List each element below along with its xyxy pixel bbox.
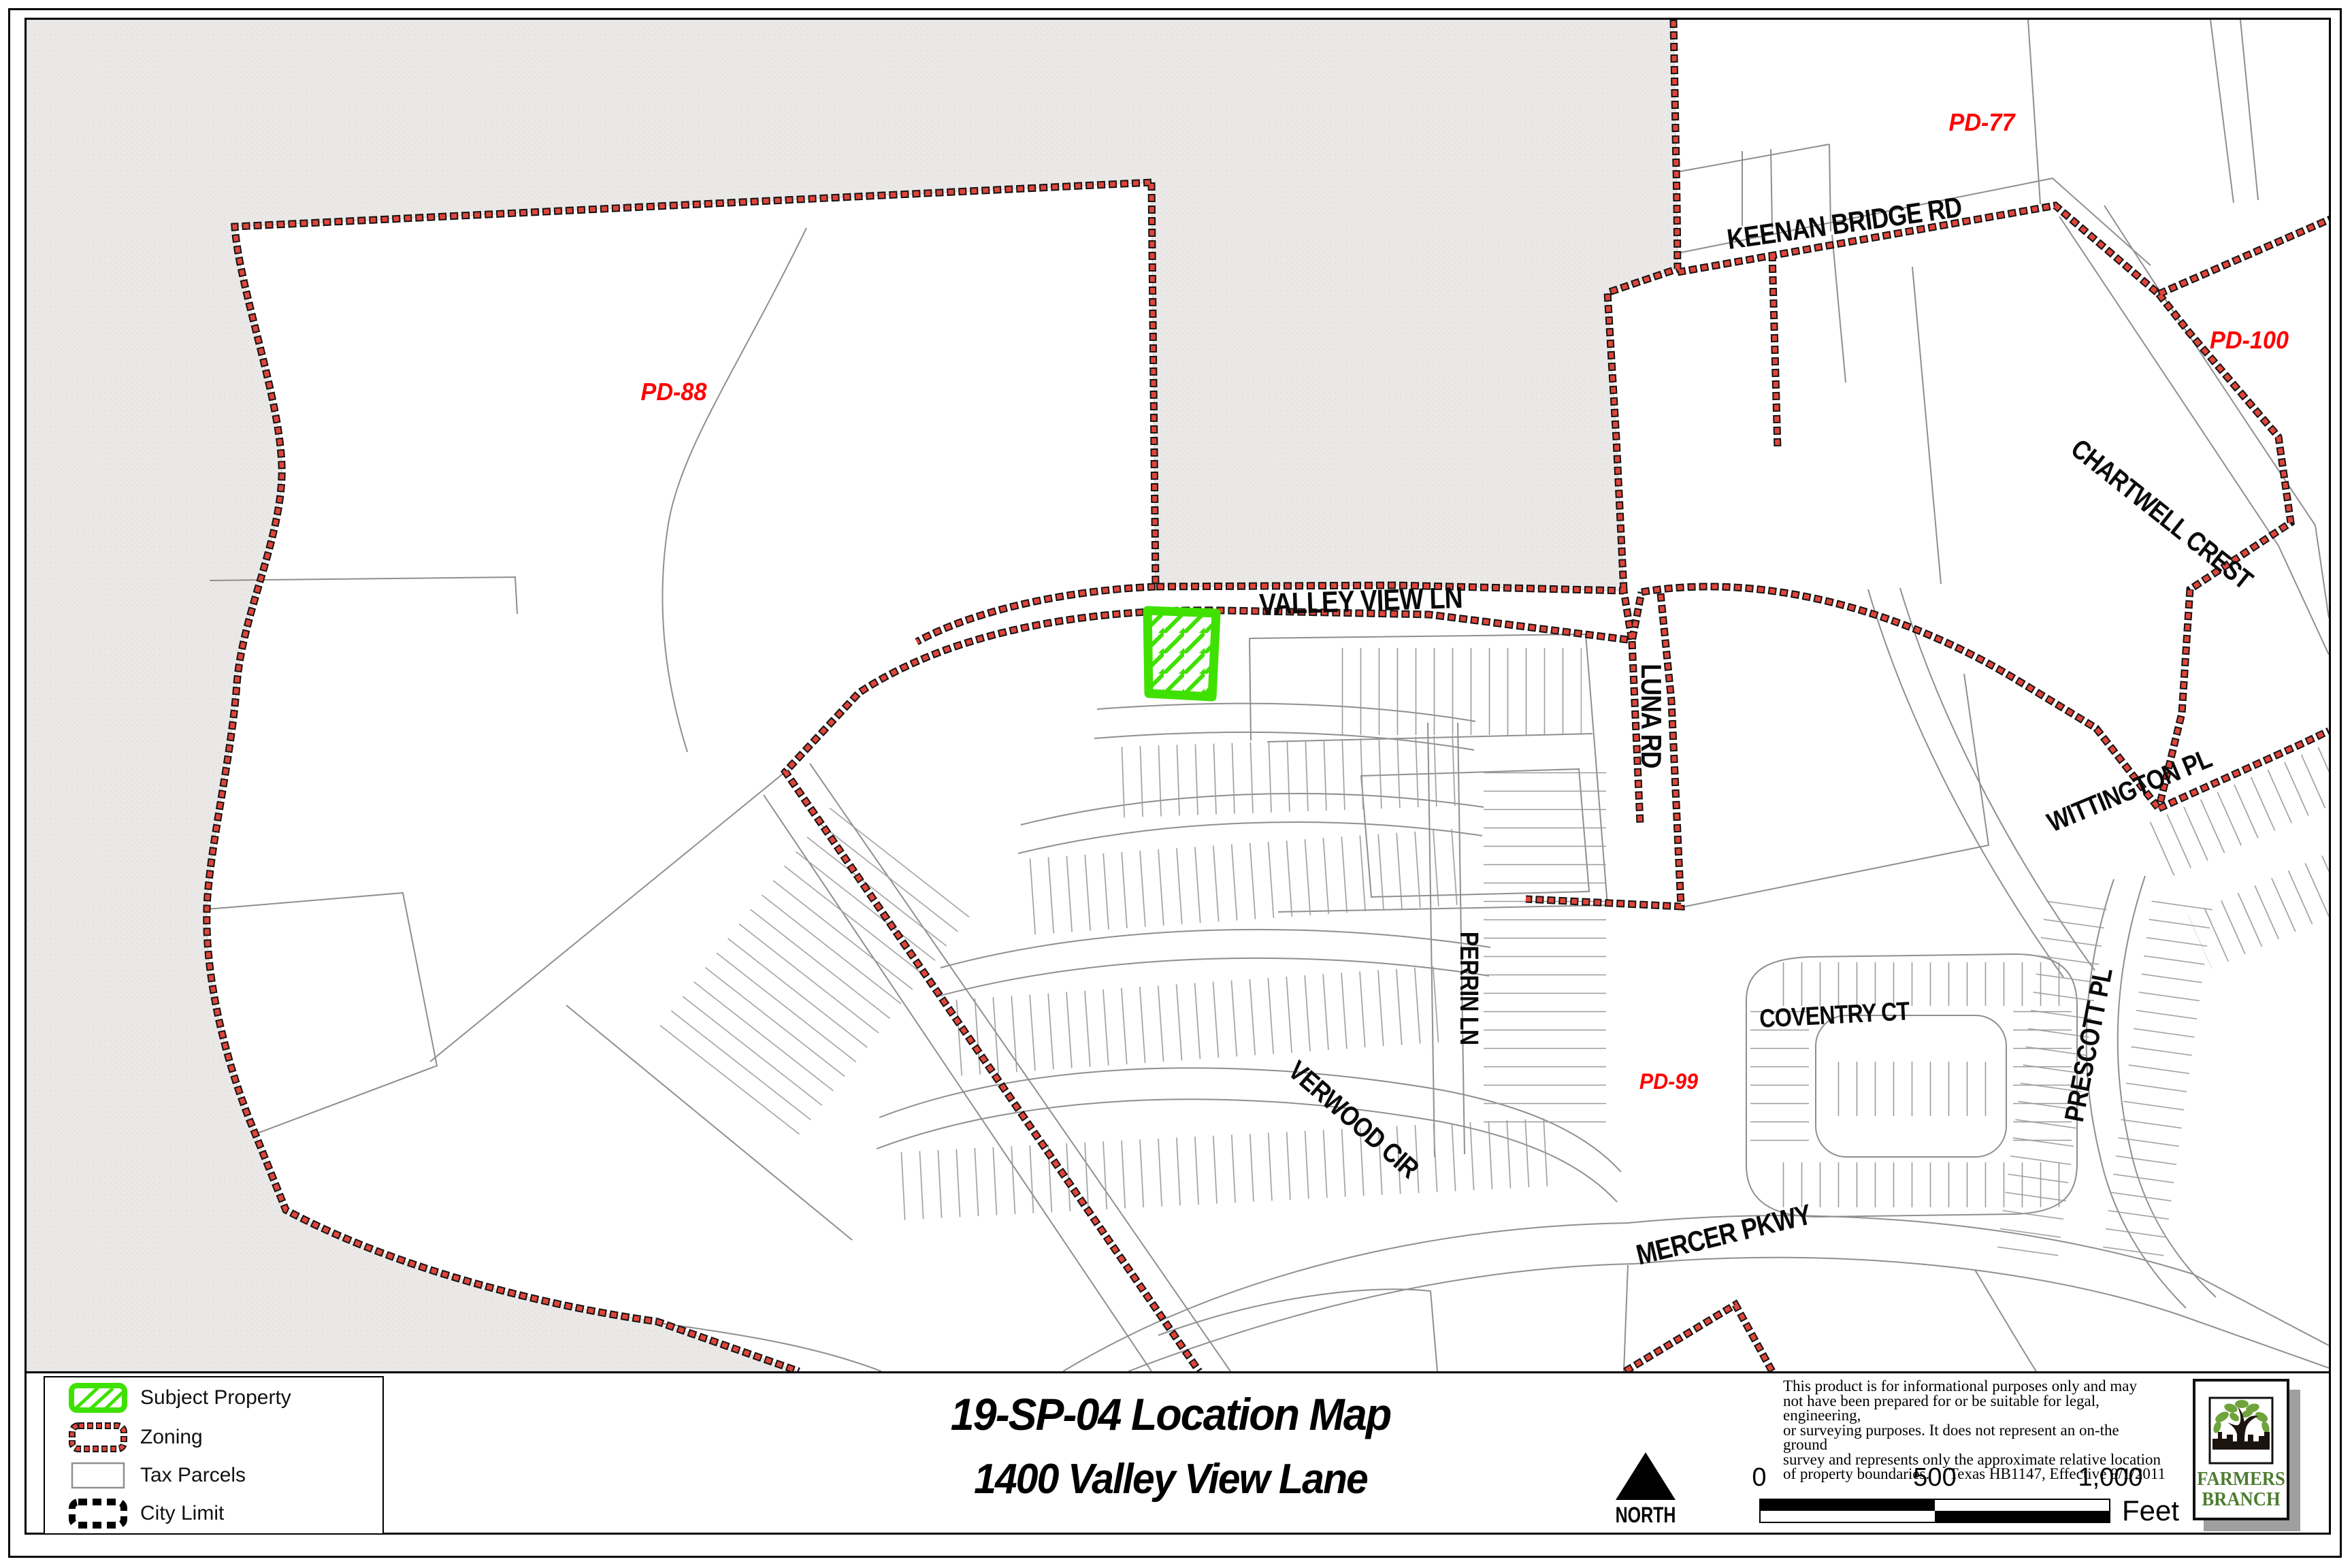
scale-tick-0: 0 [1752, 1463, 1766, 1492]
scale-bar-segment [1935, 1511, 2109, 1522]
disclaimer-line: not have been prepared for or be suitabl… [1783, 1394, 2166, 1423]
legend-item-subject-property: Subject Property [68, 1382, 291, 1414]
page-subtitle: 1400 Valley View Lane [808, 1455, 1533, 1503]
legend-item-label: Zoning [140, 1426, 203, 1449]
legend-item-label: Subject Property [140, 1386, 291, 1409]
legend-item-label: Tax Parcels [140, 1464, 246, 1487]
legend-item-city-limit: City Limit [68, 1497, 224, 1529]
road-label-perrin-ln: PERRIN LN [1454, 932, 1483, 1045]
scale-bar [1759, 1499, 2110, 1523]
disclaimer-line: This product is for informational purpos… [1783, 1379, 2166, 1394]
logo-name-line1: FARMERS [2195, 1469, 2287, 1490]
north-arrow-label: NORTH [1599, 1503, 1692, 1528]
map-sheet: VALLEY VIEW LN KEENAN BRIDGE RD LUNA RD … [0, 0, 2352, 1568]
zone-label-pd-77: PD-77 [1949, 109, 2016, 136]
disclaimer-line-left: of property boundaries. [1783, 1467, 1929, 1482]
road-label-luna-rd: LUNA RD [1635, 664, 1666, 768]
map-drawing: VALLEY VIEW LN KEENAN BRIDGE RD LUNA RD … [27, 20, 2329, 1371]
page-title: 19-SP-04 Location Map [808, 1388, 1533, 1440]
city-limit-swatch-icon [68, 1498, 128, 1529]
scale-tick-500: 500 [1913, 1463, 1956, 1492]
legend-item-zoning: Zoning [68, 1421, 203, 1453]
tax-parcels-swatch-icon [68, 1460, 128, 1491]
subject-property-swatch-icon [68, 1382, 128, 1414]
title-block: 19-SP-04 Location Map 1400 Valley View L… [789, 1388, 1552, 1503]
legend-item-tax-parcels: Tax Parcels [68, 1459, 246, 1491]
scale-unit-label: Feet [2122, 1494, 2179, 1527]
zone-label-pd-99: PD-99 [1639, 1069, 1699, 1094]
scale-tick-1000: 1,000 [2078, 1463, 2142, 1492]
road-label-valley-view-ln: VALLEY VIEW LN [1259, 581, 1463, 621]
scale-bar-segment [1761, 1511, 1935, 1522]
legend-item-label: City Limit [140, 1502, 224, 1525]
zoning-swatch-icon [68, 1422, 128, 1453]
scale-bar-segment [1935, 1500, 2109, 1511]
logo-tree-icon [2208, 1396, 2274, 1465]
zone-label-pd-88: PD-88 [641, 378, 707, 406]
north-arrow-icon [1616, 1452, 1676, 1500]
subject-property-parcel [1147, 610, 1216, 697]
map-canvas: VALLEY VIEW LN KEENAN BRIDGE RD LUNA RD … [24, 18, 2331, 1373]
disclaimer-line: or surveying purposes. It does not repre… [1783, 1423, 2166, 1452]
zone-label-pd-100: PD-100 [2210, 327, 2289, 354]
scale-bar-segment [1761, 1500, 1935, 1511]
logo-name-line2: BRANCH [2195, 1489, 2287, 1511]
